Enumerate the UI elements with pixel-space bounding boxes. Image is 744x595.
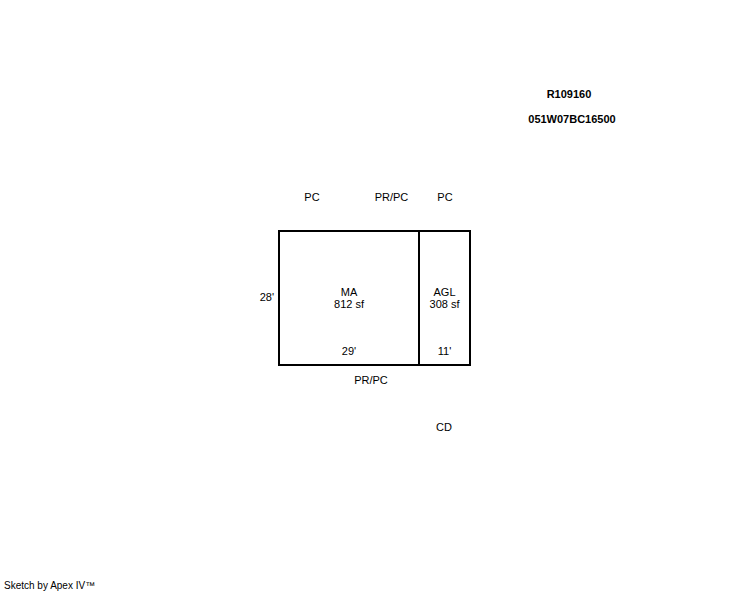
dimension-ma-width: 29' (280, 345, 418, 358)
parcel-id: 051W07BC16500 (472, 113, 672, 126)
perimeter-label-pc-left: PC (287, 191, 337, 204)
perimeter-label-prpc-bottom: PR/PC (346, 374, 396, 387)
apex-sketch-canvas: R109160 051W07BC16500 PC PR/PC PC 28' MA… (0, 0, 744, 595)
dimension-agl-width: 11' (420, 345, 469, 358)
section-agl-code: AGL (433, 286, 455, 298)
section-ma-code: MA (341, 286, 358, 298)
cd-label: CD (419, 421, 469, 434)
perimeter-label-pc-right: PC (420, 191, 470, 204)
section-agl-area: 308 sf (430, 298, 460, 310)
dimension-left-height: 28' (234, 291, 274, 304)
section-ma-area: 812 sf (334, 298, 364, 310)
perimeter-label-prpc-top: PR/PC (366, 191, 417, 204)
record-id: R109160 (469, 88, 669, 101)
sketch-credit: Sketch by Apex IV™ (4, 580, 95, 592)
